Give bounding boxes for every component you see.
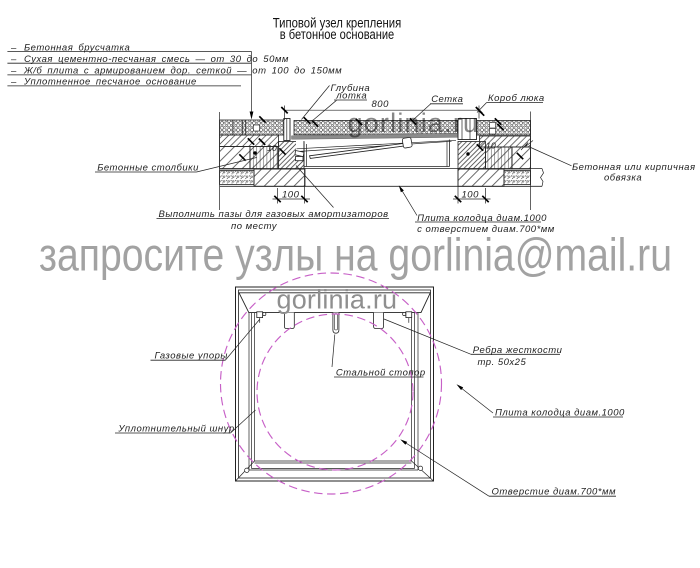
svg-text:в бетонное основание: в бетонное основание bbox=[280, 27, 395, 42]
svg-text:по месту: по месту bbox=[231, 221, 278, 232]
svg-text:обвязка: обвязка bbox=[604, 172, 642, 183]
svg-text:100: 100 bbox=[462, 189, 480, 200]
svg-text:10: 10 bbox=[267, 143, 277, 153]
svg-text:gorlinia.ru: gorlinia.ru bbox=[277, 285, 398, 315]
svg-text:100: 100 bbox=[282, 189, 300, 200]
svg-text:запросите узлы на gorlinia@mai: запросите узлы на gorlinia@mail.ru bbox=[39, 229, 672, 281]
svg-text:Отверстие диам.700*мм: Отверстие диам.700*мм bbox=[492, 486, 617, 497]
svg-text:gorlinia.ru: gorlinia.ru bbox=[348, 108, 480, 138]
svg-text:тр. 50х25: тр. 50х25 bbox=[478, 357, 527, 368]
svg-text:10: 10 bbox=[486, 141, 496, 151]
svg-text:с отверстием диам.700*мм: с отверстием диам.700*мм bbox=[417, 224, 555, 235]
svg-text:800: 800 bbox=[372, 99, 390, 110]
